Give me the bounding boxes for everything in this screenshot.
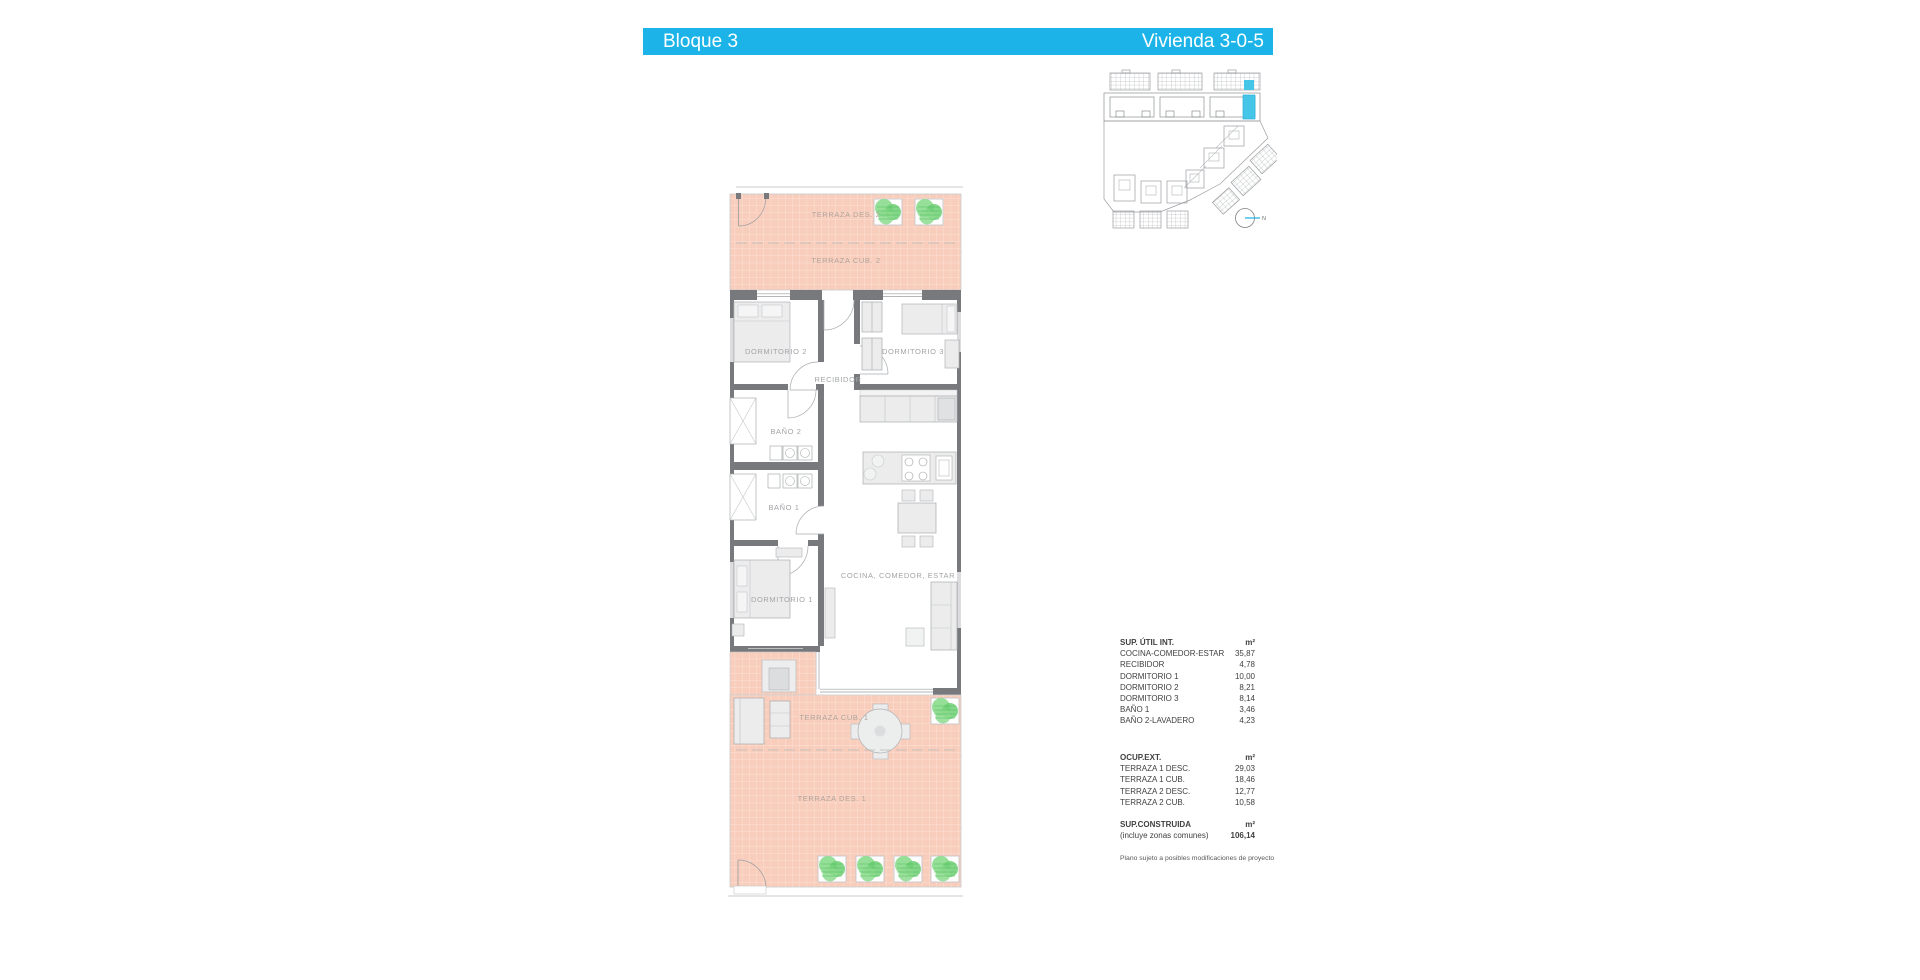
highlighted-parking-cell <box>1244 80 1254 90</box>
unit-header: m² <box>1245 637 1255 648</box>
terraza-cub-1-label: TERRAZA CUB. 1 <box>799 713 868 722</box>
table-title: OCUP.EXT. <box>1120 752 1161 763</box>
table-row: RECIBIDOR4,78 <box>1120 659 1255 670</box>
parcel-outline <box>1104 121 1268 212</box>
terraza-des-1-label: TERRAZA DES. 1 <box>798 794 867 803</box>
table-row: DORMITORIO 38,14 <box>1120 693 1255 704</box>
bano-2: BAÑO 2 <box>730 398 812 460</box>
terraza-des-2-label: TERRAZA DES. 2 <box>812 210 881 219</box>
parking-blocks-top <box>1110 70 1260 90</box>
cocina-label: COCINA, COMEDOR, ESTAR <box>841 571 955 580</box>
dormitorio-2: DORMITORIO 2 <box>734 302 807 362</box>
plan-sheet: Bloque 3 Vivienda 3-0-5 <box>0 0 1920 980</box>
recibidor-label: RECIBIDOR <box>814 375 861 384</box>
floor-plan: TERRAZA DES. 2 TERRAZA CUB. 2 <box>728 184 963 898</box>
bano-2-label: BAÑO 2 <box>770 427 801 436</box>
highlighted-unit <box>1243 95 1255 119</box>
bano-1: BAÑO 1 <box>730 474 812 520</box>
dwelling-title: Vivienda 3-0-5 <box>1142 28 1264 55</box>
site-key-plan: N <box>1102 62 1277 234</box>
dormitorio-1: DORMITORIO 1 <box>732 548 813 636</box>
table-row: TERRAZA 2 DESC.12,77 <box>1120 786 1255 797</box>
parking-blocks-diagonal <box>1212 144 1277 214</box>
dormitorio-2-label: DORMITORIO 2 <box>745 347 807 356</box>
parking-blocks-bottom <box>1113 211 1188 228</box>
table-row: BAÑO 13,46 <box>1120 704 1255 715</box>
unit-header: m² <box>1245 819 1255 830</box>
table-row: TERRAZA 1 CUB.18,46 <box>1120 774 1255 785</box>
kitchen <box>860 390 957 484</box>
bano-1-label: BAÑO 1 <box>768 503 799 512</box>
title-bar: Bloque 3 Vivienda 3-0-5 <box>643 28 1273 55</box>
table-row: BAÑO 2-LAVADERO4,23 <box>1120 715 1255 726</box>
living-dining: COCINA, COMEDOR, ESTAR <box>825 490 957 650</box>
table-row: DORMITORIO 110,00 <box>1120 671 1255 682</box>
north-label: N <box>1262 216 1266 222</box>
terraza-2: TERRAZA DES. 2 TERRAZA CUB. 2 <box>730 193 961 290</box>
table-row: (incluye zonas comunes) 106,14 <box>1120 830 1255 841</box>
table-row: COCINA-COMEDOR-ESTAR35,87 <box>1120 648 1255 659</box>
table-row: DORMITORIO 28,21 <box>1120 682 1255 693</box>
table-title: SUP. ÚTIL INT. <box>1120 637 1174 648</box>
disclaimer-footnote: Plano sujeto a posibles modificaciones d… <box>1120 855 1290 862</box>
dormitorio-3-label: DORMITORIO 3 <box>882 347 944 356</box>
table-title: SUP.CONSTRUIDA <box>1120 819 1191 830</box>
table-row: TERRAZA 1 DESC.29,03 <box>1120 763 1255 774</box>
interior-surfaces-table: SUP. ÚTIL INT. m² COCINA-COMEDOR-ESTAR35… <box>1120 637 1255 727</box>
building-strip <box>1104 93 1260 121</box>
table-row: TERRAZA 2 CUB.10,58 <box>1120 797 1255 808</box>
terraza-1: TERRAZA CUB. 1 TERRAZA DES. 1 <box>730 652 961 894</box>
dormitorio-3: DORMITORIO 3 <box>862 302 959 370</box>
unit-header: m² <box>1245 752 1255 763</box>
dormitorio-1-label: DORMITORIO 1 <box>751 595 813 604</box>
north-compass-icon: N <box>1236 209 1267 228</box>
constructed-surface-table: SUP.CONSTRUIDA m² (incluye zonas comunes… <box>1120 819 1255 841</box>
block-title: Bloque 3 <box>663 28 738 55</box>
terraza-cub-2-label: TERRAZA CUB. 2 <box>811 256 880 265</box>
exterior-occupation-table: OCUP.EXT. m² TERRAZA 1 DESC.29,03 TERRAZ… <box>1120 752 1255 808</box>
